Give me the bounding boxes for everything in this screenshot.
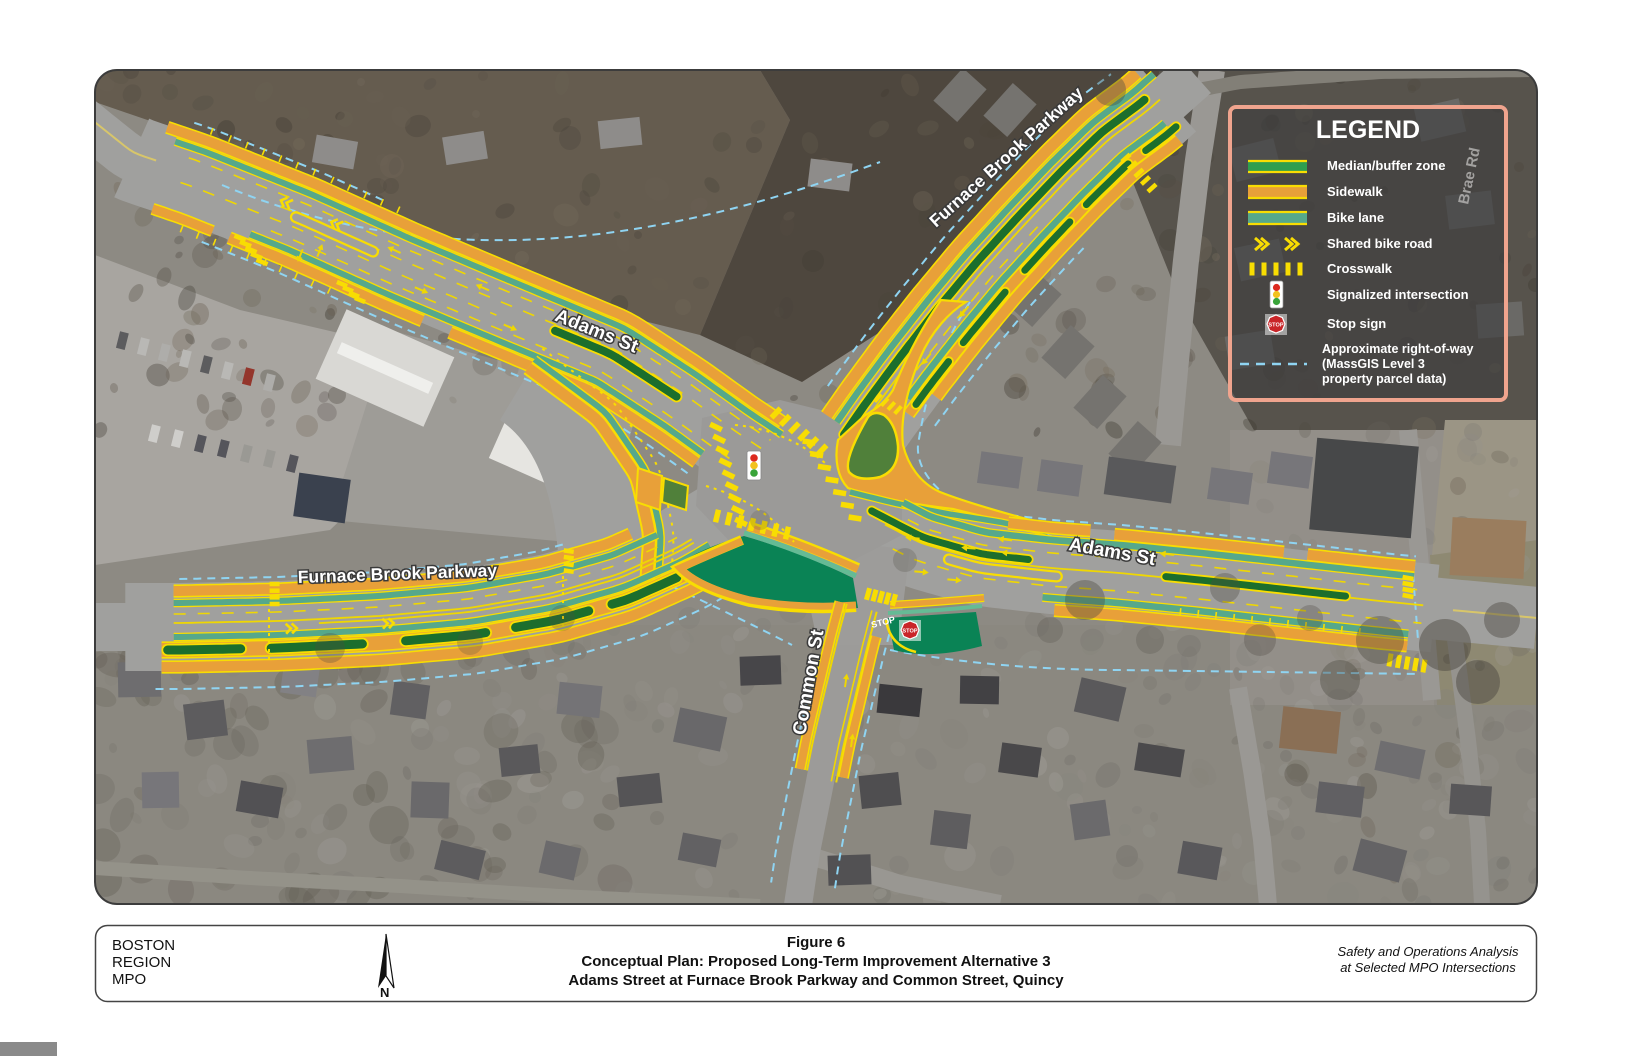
svg-text:Bike lane: Bike lane (1327, 210, 1384, 225)
svg-text:REGION: REGION (112, 954, 171, 971)
svg-text:STOP: STOP (1268, 323, 1283, 329)
svg-text:Adams Street at Furnace Brook: Adams Street at Furnace Brook Parkway an… (568, 972, 1064, 989)
svg-text:Stop sign: Stop sign (1327, 316, 1386, 331)
svg-text:BOSTON: BOSTON (112, 937, 175, 954)
svg-text:Sidewalk: Sidewalk (1327, 184, 1383, 199)
svg-text:Median/buffer zone: Median/buffer zone (1327, 158, 1445, 173)
svg-text:Crosswalk: Crosswalk (1327, 261, 1393, 276)
svg-text:Figure 6: Figure 6 (787, 934, 845, 951)
svg-text:Safety and Operations Analysis: Safety and Operations Analysis (1338, 944, 1519, 959)
svg-text:Approximate right-of-way: Approximate right-of-way (1322, 342, 1473, 356)
svg-text:N: N (380, 985, 389, 1000)
svg-text:at Selected MPO Intersections: at Selected MPO Intersections (1340, 960, 1516, 975)
svg-text:(MassGIS Level 3: (MassGIS Level 3 (1322, 357, 1425, 371)
svg-text:LEGEND: LEGEND (1316, 116, 1420, 144)
svg-text:property parcel data): property parcel data) (1322, 372, 1446, 386)
svg-text:Shared bike road: Shared bike road (1327, 236, 1433, 251)
svg-text:Signalized intersection: Signalized intersection (1327, 287, 1469, 302)
svg-text:STOP: STOP (902, 629, 917, 635)
svg-text:MPO: MPO (112, 971, 146, 988)
svg-text:Conceptual Plan: Proposed Long: Conceptual Plan: Proposed Long-Term Impr… (581, 953, 1050, 970)
